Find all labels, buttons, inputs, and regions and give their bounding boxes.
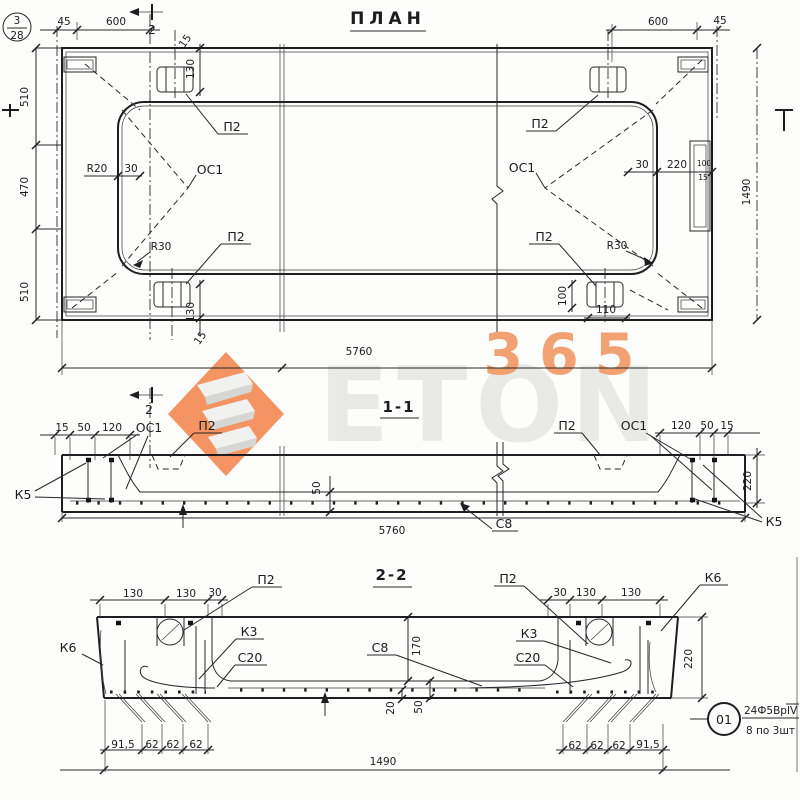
s22-dim-62-l2: 62: [166, 739, 179, 751]
section-2-2-title: 2-2: [375, 566, 408, 584]
svg-text:П2: П2: [223, 119, 240, 134]
plan-oc1-right: ОС1: [509, 160, 536, 175]
section11-cut2-mark: 2: [129, 387, 163, 417]
plan-view: ПЛАН 100 15: [2, 4, 793, 375]
s22-dim-62-r2: 62: [590, 740, 603, 752]
s11-c8-label: С8: [496, 516, 513, 531]
plan-dim-45-right: 45: [713, 15, 726, 27]
s22-dim-91-5-r: 91,5: [636, 739, 659, 751]
svg-text:П2: П2: [535, 229, 552, 244]
plan-dim-510-bottom: 510: [19, 282, 31, 302]
plan-title: ПЛАН: [350, 9, 426, 29]
plan-dim-470: 470: [19, 177, 31, 197]
plan-dim-600-right: 600: [648, 16, 668, 28]
plan-dim-110-loop: 110: [596, 304, 616, 316]
plan-dim-1490: 1490: [741, 179, 753, 206]
s11-p2-left: П2: [198, 418, 215, 433]
plan-dim-600-left: 600: [106, 16, 126, 28]
scanned-blueprint-page: ETON 365 3 28 ПЛАН: [0, 0, 800, 800]
section-1-1-title: 1-1: [382, 398, 415, 416]
svg-text:П2: П2: [531, 116, 548, 131]
rebar-callout: 01 24Ф5ВрIV 8 по 3шт: [690, 703, 799, 737]
s11-oc1-left: ОС1: [136, 420, 163, 435]
s22-dim-170: 170: [411, 636, 423, 656]
s22-k6-right: К6: [705, 570, 722, 585]
plan-dim-15-bottom-loop: 15: [192, 329, 210, 347]
s22-dim-62-r3: 62: [612, 740, 625, 752]
s22-dim-1490: 1490: [370, 756, 397, 768]
section-2-2: 2-2 130 130 30 30 130 130: [60, 557, 797, 774]
plan-dim-30-right: 30: [635, 159, 648, 171]
plan-dim-100-loop: 100: [557, 286, 569, 306]
s22-dim-130-l1: 130: [123, 588, 143, 600]
s22-dim-62-r1: 62: [568, 740, 581, 752]
blueprint-drawing: ETON 365 3 28 ПЛАН: [0, 0, 800, 800]
s22-dim-62-l3: 62: [189, 739, 202, 751]
plan-oc1-left: ОС1: [197, 162, 224, 177]
svg-text:2: 2: [145, 402, 153, 417]
s11-dim-15-r: 15: [720, 420, 733, 432]
s11-k5-left: К5: [15, 487, 32, 502]
plan-p2-labels: П2 П2 П2 П2: [186, 94, 598, 286]
s22-dim-62-l1: 62: [145, 739, 158, 751]
s11-dim-50-mid: 50: [311, 481, 323, 494]
plan-dim-45-left: 45: [57, 16, 70, 28]
s22-dim-220: 220: [683, 649, 695, 669]
s11-dim-120-l: 120: [102, 422, 122, 434]
s22-dim-30-l: 30: [208, 587, 221, 599]
plan-dim-130-top-loop: 130: [185, 59, 197, 79]
s22-dim-30-r: 30: [553, 587, 566, 599]
s22-dim-130-l2: 130: [176, 588, 196, 600]
s22-dim-20: 20: [385, 701, 397, 714]
svg-text:П2: П2: [227, 229, 244, 244]
plan-dim-100-edge: 100: [697, 159, 712, 168]
sheet-total: 28: [10, 30, 23, 42]
s22-k6-left: К6: [60, 640, 77, 655]
sheet-badge: 3 28: [3, 13, 31, 42]
callout-spec: 24Ф5ВрIV: [744, 705, 798, 717]
s22-dim-130-r1: 130: [576, 587, 596, 599]
s11-dim-15-l: 15: [55, 422, 68, 434]
watermark: ETON 365: [168, 322, 665, 476]
plan-radius-r30-right: R30: [607, 240, 628, 252]
s22-dim-91-5-l: 91,5: [111, 739, 134, 751]
plan-radius-r30-left: R30: [151, 241, 172, 253]
plan-radius-r20: R20: [87, 163, 108, 175]
s22-c20-right: С20: [516, 650, 541, 665]
plan-dim-220-right: 220: [667, 159, 687, 171]
s22-p2-left: П2: [257, 572, 274, 587]
s11-oc1-right: ОС1: [621, 418, 648, 433]
plan-dim-30-left: 30: [124, 163, 137, 175]
plan-dim-15-edge: 15: [698, 173, 708, 182]
s11-dim-5760: 5760: [379, 525, 406, 537]
s11-dim-50-l: 50: [77, 422, 90, 434]
s22-dim-50: 50: [413, 700, 425, 713]
s22-k3-left: К3: [241, 624, 258, 639]
sheet-number: 3: [14, 15, 21, 27]
watermark-number: 365: [484, 322, 651, 388]
s11-k5-right: К5: [766, 514, 783, 529]
plan-dim-130-bottom-loop: 130: [185, 302, 197, 322]
s11-p2-right: П2: [558, 418, 575, 433]
s22-p2-right: П2: [499, 571, 516, 586]
s22-k3-right: К3: [521, 626, 538, 641]
s22-c8-label: С8: [372, 640, 389, 655]
s11-dim-120-r: 120: [671, 420, 691, 432]
section-cut-2-mark: 2: [129, 4, 163, 37]
watermark-logo: [168, 352, 284, 476]
plan-dim-5760: 5760: [346, 346, 373, 358]
callout-count: 8 по 3шт: [746, 725, 795, 737]
s11-dim-50-r: 50: [700, 420, 713, 432]
plan-dim-510-top: 510: [19, 87, 31, 107]
callout-number: 01: [716, 712, 732, 727]
panel-opening: [118, 102, 657, 274]
s22-dim-130-r2: 130: [621, 587, 641, 599]
s22-c20-left: С20: [238, 650, 263, 665]
s11-dim-220-r: 220: [742, 471, 754, 491]
